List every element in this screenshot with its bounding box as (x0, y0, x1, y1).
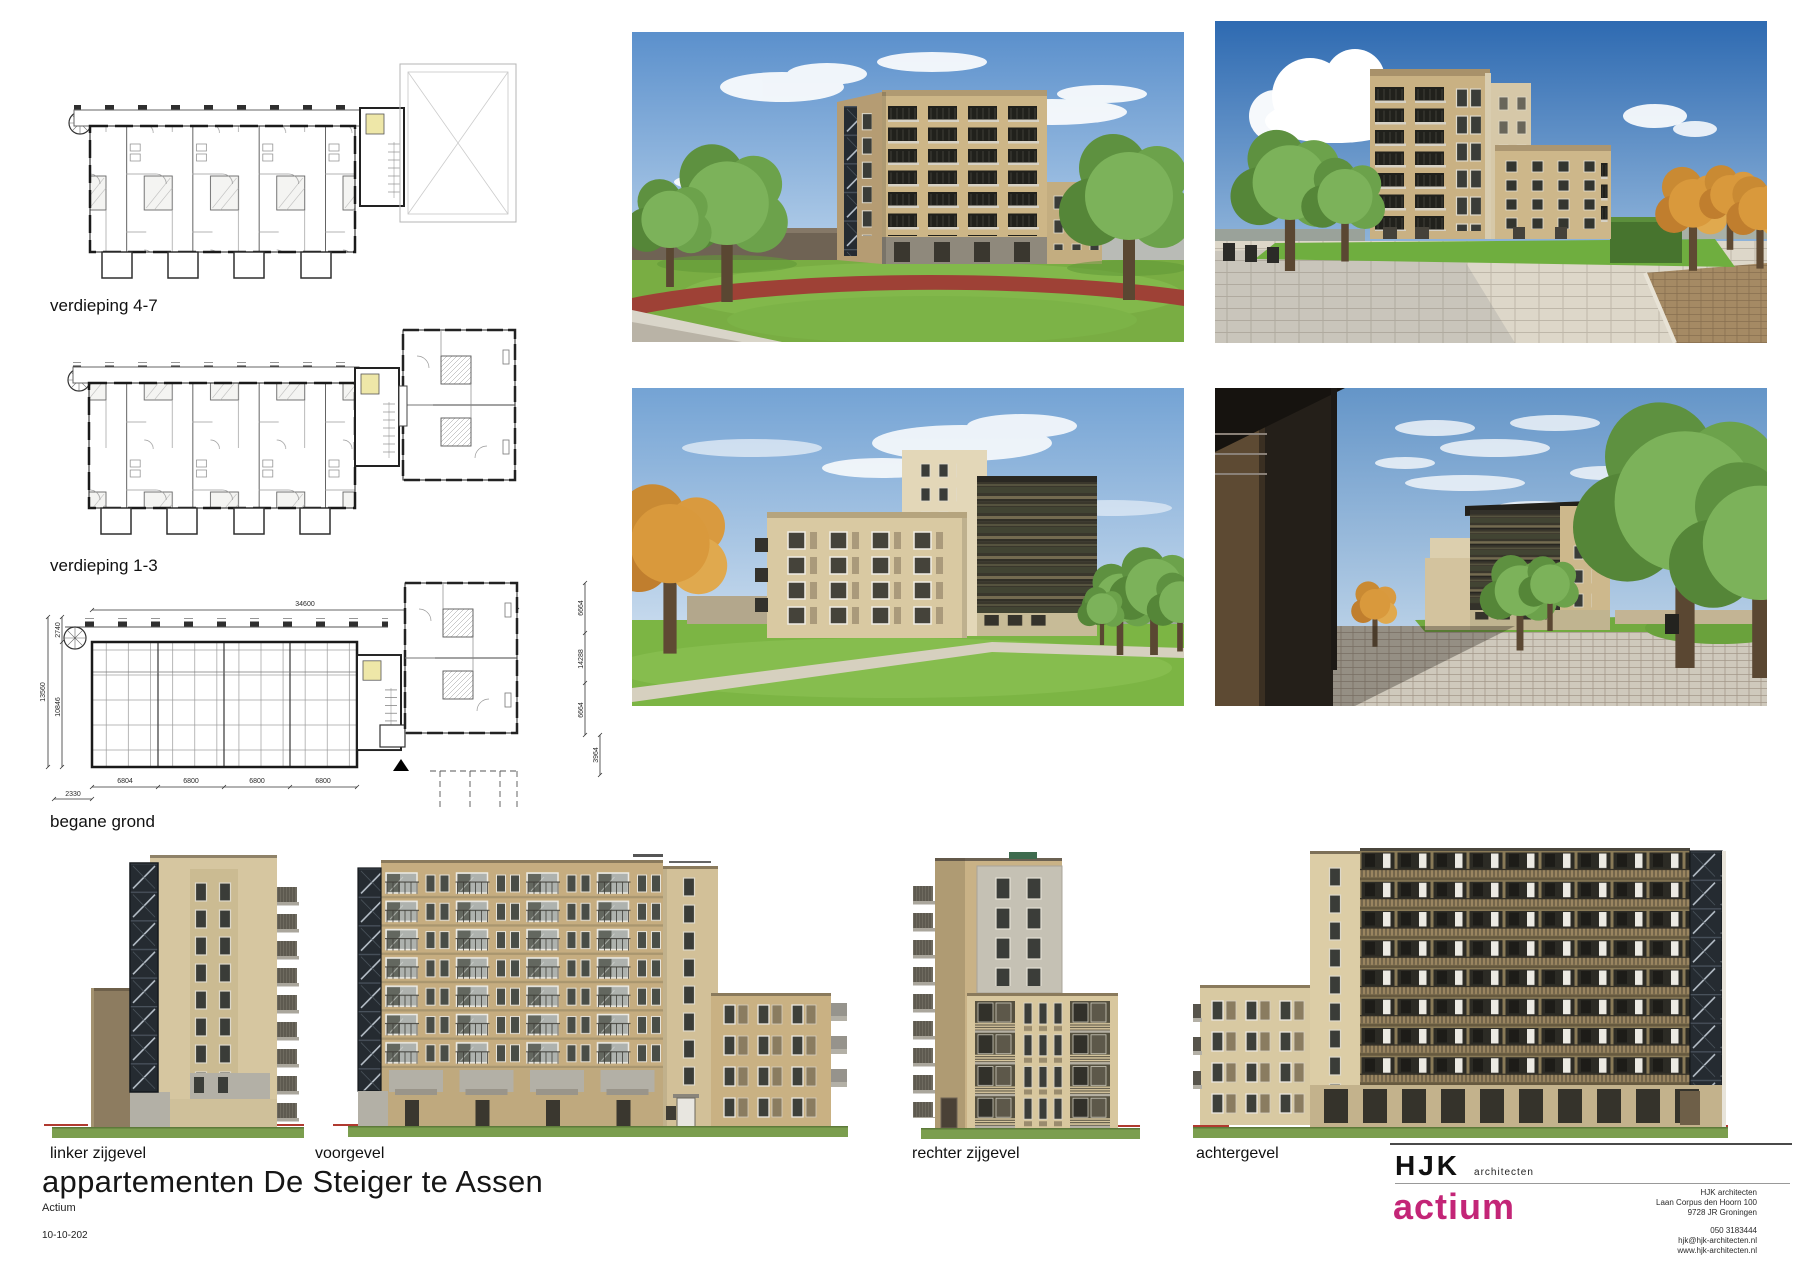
render-plaza-view (1215, 21, 1767, 343)
render-rear-lawn-view (632, 388, 1184, 706)
sheet-date: 10-10-202 (42, 1230, 88, 1241)
svg-text:2740: 2740 (55, 622, 62, 638)
contact-line: 050 3183444 (1557, 1226, 1757, 1236)
drawing-sheet: verdieping 4-7 verdieping 1-3 34600 1356… (0, 0, 1800, 1270)
svg-text:6800: 6800 (249, 778, 265, 785)
titleblock-top-rule (1390, 1143, 1792, 1145)
svg-text:2330: 2330 (65, 791, 81, 798)
elevation-linker-zijgevel (44, 855, 314, 1145)
contact-address: HJK architecten Laan Corpus den Hoorn 10… (1557, 1188, 1757, 1218)
floor-plan-verdieping-4-7 (60, 12, 592, 304)
svg-text:6804: 6804 (117, 778, 133, 785)
svg-text:6664: 6664 (578, 702, 585, 718)
render-street-closeup-view (1215, 388, 1767, 706)
titleblock-divider-rule (1395, 1183, 1790, 1184)
contact-line: HJK architecten (1557, 1188, 1757, 1198)
contact-line: www.hjk-architecten.nl (1557, 1246, 1757, 1256)
elevation-label-rechter-zijgevel: rechter zijgevel (912, 1145, 1020, 1163)
contact-line: Laan Corpus den Hoorn 100 (1557, 1198, 1757, 1208)
plan-label-verdieping-4-7: verdieping 4-7 (50, 296, 158, 316)
svg-text:6664: 6664 (578, 600, 585, 616)
svg-text:3964: 3964 (593, 747, 600, 763)
elevation-label-achtergevel: achtergevel (1196, 1145, 1279, 1163)
firm-logo: HJKarchitecten (1395, 1150, 1534, 1182)
floor-plan-begane-grond: 34600 13560 2740 10846 6804 6800 6800 68… (40, 575, 620, 825)
contact-details: 050 3183444 hjk@hjk-architecten.nl www.h… (1557, 1226, 1757, 1256)
elevation-voorgevel (333, 848, 878, 1141)
elevation-achtergevel (1193, 848, 1728, 1141)
elevation-label-voorgevel: voorgevel (315, 1145, 384, 1163)
contact-line: hjk@hjk-architecten.nl (1557, 1236, 1757, 1246)
client-name: Actium (42, 1202, 76, 1214)
svg-text:10846: 10846 (55, 697, 62, 717)
firm-logo-text: HJK (1395, 1150, 1460, 1181)
elevation-rechter-zijgevel (905, 848, 1140, 1141)
plan-label-begane-grond: begane grond (50, 812, 155, 832)
svg-text:13560: 13560 (40, 682, 47, 702)
contact-line: 9728 JR Groningen (1557, 1208, 1757, 1218)
svg-text:34600: 34600 (295, 601, 315, 608)
client-logo: actium (1393, 1186, 1515, 1228)
render-street-corner-view (632, 32, 1184, 342)
floor-plan-verdieping-1-3 (60, 328, 592, 580)
svg-text:14288: 14288 (578, 649, 585, 669)
elevation-label-linker-zijgevel: linker zijgevel (50, 1145, 146, 1163)
svg-text:6800: 6800 (183, 778, 199, 785)
plan-label-verdieping-1-3: verdieping 1-3 (50, 556, 158, 576)
sheet-title: appartementen De Steiger te Assen (42, 1164, 543, 1200)
contact-block: HJK architecten Laan Corpus den Hoorn 10… (1557, 1188, 1757, 1264)
firm-logo-suffix: architecten (1474, 1167, 1534, 1178)
svg-text:6800: 6800 (315, 778, 331, 785)
